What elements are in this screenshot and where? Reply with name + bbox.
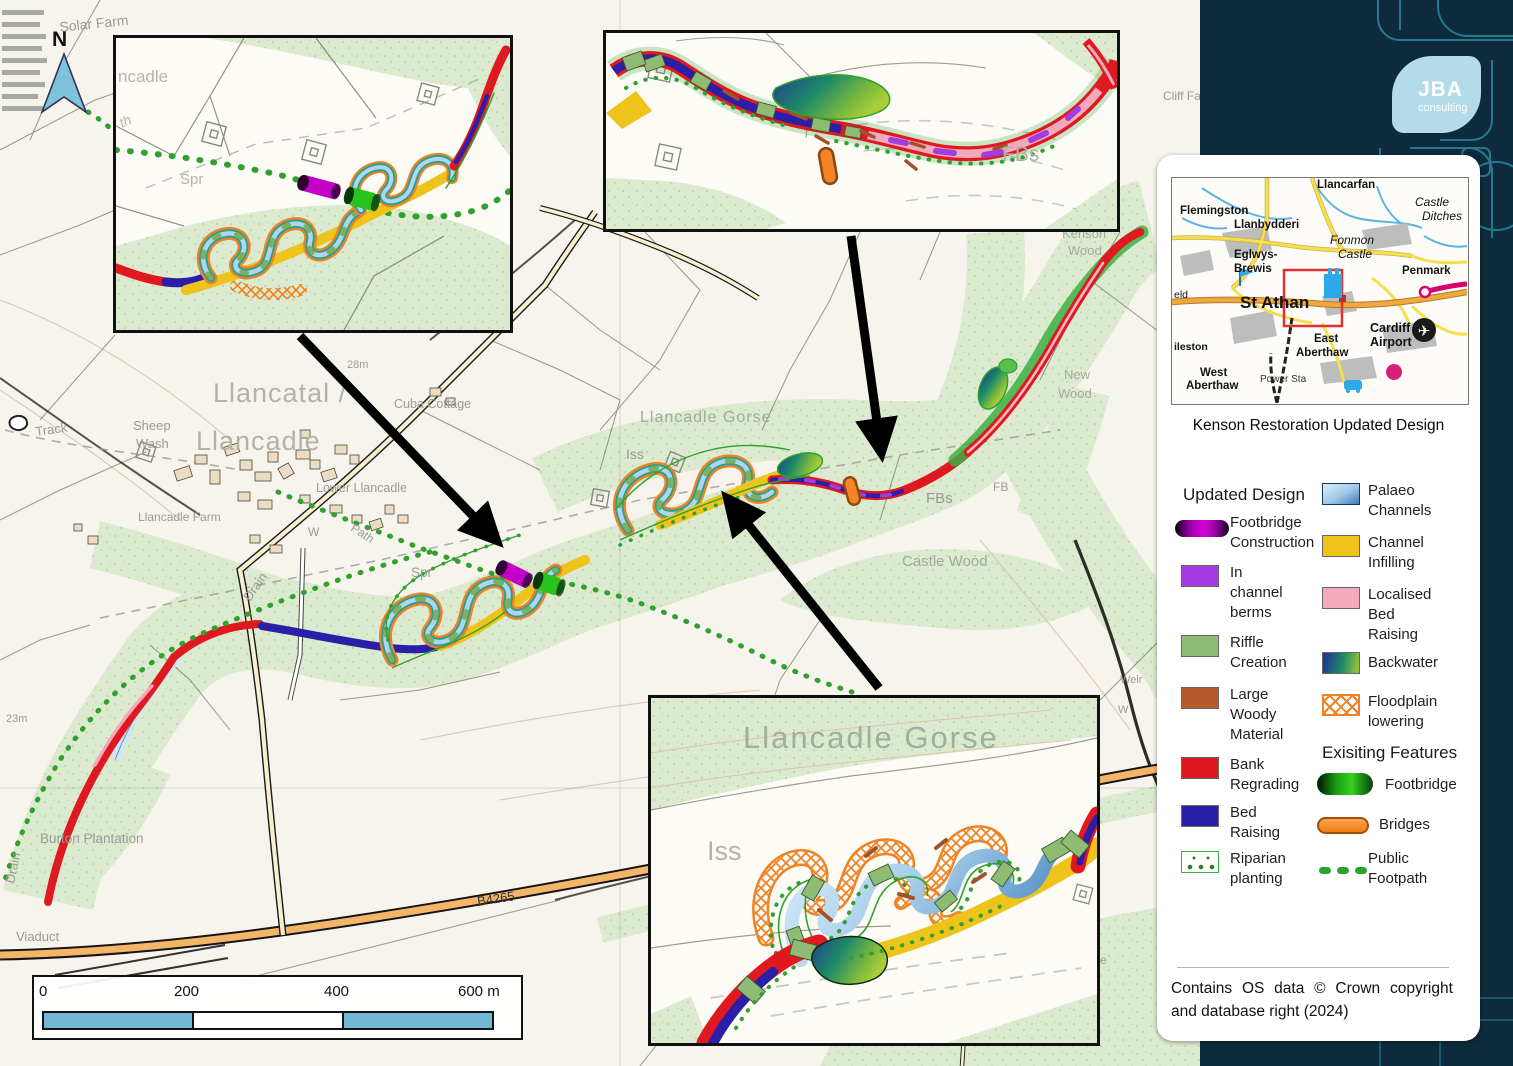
legend-swatch-footbridge [1317,773,1373,795]
legend-swatch-bed-raising [1181,805,1219,827]
svg-text:Llancatal /: Llancatal / [213,378,347,408]
jba-logo-name: JBA [1418,78,1481,102]
jba-logo: JBA consulting [1392,56,1481,133]
svg-text:FBs: FBs [926,490,953,507]
inset-detail-west: ncadle th Spr [113,35,513,333]
svg-text:Castle Wood: Castle Wood [902,553,988,570]
legend-item-large-woody-material: LargeWoodyMaterial [1230,685,1283,745]
legend-item-in-channel-berms: Inchannelberms [1230,563,1283,623]
legend-swatch-bridges [1317,817,1369,834]
legend-swatch-floodplain-lowering [1322,694,1360,716]
legend-item-public-footpath: PublicFootpath [1368,849,1427,889]
svg-text:Llancadle Gorse: Llancadle Gorse [640,409,772,426]
svg-text:Iss: Iss [626,446,644,462]
svg-text:Wash: Wash [136,436,169,451]
svg-text:Burton Plantation: Burton Plantation [40,831,144,846]
svg-text:✈: ✈ [1418,323,1431,340]
svg-text:Flemingston: Flemingston [1180,205,1248,217]
svg-text:Cardiff: Cardiff [1370,321,1411,335]
svg-text:Sheep: Sheep [133,418,171,433]
legend-item-riparian-planting: Riparianplanting [1230,849,1286,889]
svg-text:Airport: Airport [1370,335,1413,349]
scale-tick-0: 0 [39,983,47,1000]
svg-text:ncadle: ncadle [118,67,168,86]
legend-swatch-in-channel-berms [1181,565,1219,587]
legend-swatch-riffle-creation [1181,635,1219,657]
svg-text:Llancadle: Llancadle [196,426,321,456]
legend-header-existing: Exisiting Features [1322,743,1457,763]
inset-detail-gorse: Llancadle Gorse Iss [648,695,1100,1046]
location-overview-map: ✈ Flemingston Llanbydderi Llancarfan Pen… [1171,177,1469,405]
scale-tick-400: 400 [324,983,349,1000]
svg-text:Llanbydderi: Llanbydderi [1234,219,1299,231]
svg-text:Llancadle Farm: Llancadle Farm [138,510,221,524]
legend-item-footbridge-construction: FootbridgeConstruction [1230,513,1314,553]
scale-bar: 0 200 400 600 m [32,975,523,1040]
svg-text:Spr: Spr [411,565,433,580]
svg-text:Castle: Castle [1415,195,1449,209]
legend-header-updated: Updated Design [1183,485,1305,505]
svg-text:Iss: Iss [707,836,742,866]
panel-divider [1177,967,1449,968]
legend-item-bridges: Bridges [1379,815,1430,835]
north-arrow-glyph [42,54,86,112]
svg-text:FB: FB [993,480,1008,494]
legend-swatch-riparian-planting [1181,851,1219,873]
legend-item-palaeo-channels: PalaeoChannels [1368,481,1431,521]
north-label: N [52,28,98,52]
copyright: Contains OS data © Crown copyright and d… [1171,977,1467,1023]
svg-text:28m: 28m [347,359,368,371]
svg-text:Power Sta: Power Sta [1260,374,1307,385]
svg-text:B4265: B4265 [476,888,515,909]
map-title: Kenson Restoration Updated Design [1157,417,1480,435]
legend-item-riffle-creation: RiffleCreation [1230,633,1287,673]
page: Solar Farm Track Llancatal / Llancadle S… [0,0,1513,1066]
svg-text:Weir: Weir [1120,674,1143,686]
svg-text:Penmark: Penmark [1402,265,1451,277]
svg-text:Lower Llancadle: Lower Llancadle [316,481,407,495]
svg-text:eld: eld [1174,289,1188,301]
svg-text:Cliff Fa: Cliff Fa [1163,89,1200,103]
svg-text:Llancadle Gorse: Llancadle Gorse [743,720,999,755]
legend-item-bed-raising: BedRaising [1230,803,1280,843]
svg-text:Spr: Spr [180,171,203,188]
svg-text:W: W [1118,704,1129,716]
svg-text:Wood: Wood [1068,243,1102,258]
svg-text:Castle: Castle [1338,247,1372,261]
svg-text:Track: Track [34,420,68,439]
legend-swatch-bank-regrading [1181,757,1219,779]
svg-text:St Athan: St Athan [1240,293,1309,312]
svg-text:ileston: ileston [1174,341,1208,353]
legend-item-footbridge: Footbridge [1385,775,1457,795]
village-buildings [74,388,455,553]
scale-tick-600: 600 m [458,983,500,1000]
svg-text:Aberthaw: Aberthaw [1296,347,1348,359]
legend-item-localised-bed-raising: LocalisedBedRaising [1368,585,1431,645]
scale-tick-200: 200 [174,983,199,1000]
main-map: Solar Farm Track Llancatal / Llancadle S… [0,0,1200,1066]
svg-text:New: New [1064,367,1091,382]
legend-swatch-localised-bed-raising [1322,587,1360,609]
svg-text:FBs: FBs [1002,143,1039,166]
svg-text:Llancarfan: Llancarfan [1317,179,1375,191]
svg-text:Wood: Wood [1058,386,1092,401]
legend-item-bank-regrading: BankRegrading [1230,755,1299,795]
legend-item-backwater: Backwater [1368,653,1438,673]
svg-text:W: W [308,525,320,539]
legend-swatch-large-woody-material [1181,687,1219,709]
legend-swatch-public-footpath [1319,861,1373,879]
legend-swatch-backwater [1322,652,1360,674]
airport-icon: ✈ [1412,318,1436,342]
svg-text:Ditches: Ditches [1422,209,1462,223]
legend-swatch-footbridge-construction [1175,520,1229,537]
svg-text:West: West [1200,367,1227,379]
scale-bar-segments [42,1011,494,1030]
svg-text:23m: 23m [6,713,27,725]
svg-text:Aberthaw: Aberthaw [1186,380,1238,392]
services-icon [1386,364,1402,380]
legend-swatch-channel-infilling [1322,535,1360,557]
svg-text:Eglwys-: Eglwys- [1234,249,1278,261]
legend-swatch-palaeo-channels [1322,483,1360,505]
legend-item-floodplain-lowering: Floodplainlowering [1368,692,1437,732]
svg-text:Fonmon: Fonmon [1330,233,1374,247]
svg-text:Cuba Cottage: Cuba Cottage [394,397,471,411]
jba-logo-tagline: consulting [1418,102,1481,114]
north-arrow: N [38,28,98,128]
svg-text:Brewis: Brewis [1234,263,1272,275]
legend-item-channel-infilling: ChannelInfilling [1368,533,1424,573]
legend-panel: ✈ Flemingston Llanbydderi Llancarfan Pen… [1157,155,1480,1041]
inset-detail-north: FBs [603,30,1120,232]
svg-text:East: East [1314,333,1338,345]
svg-text:Viaduct: Viaduct [16,929,60,944]
